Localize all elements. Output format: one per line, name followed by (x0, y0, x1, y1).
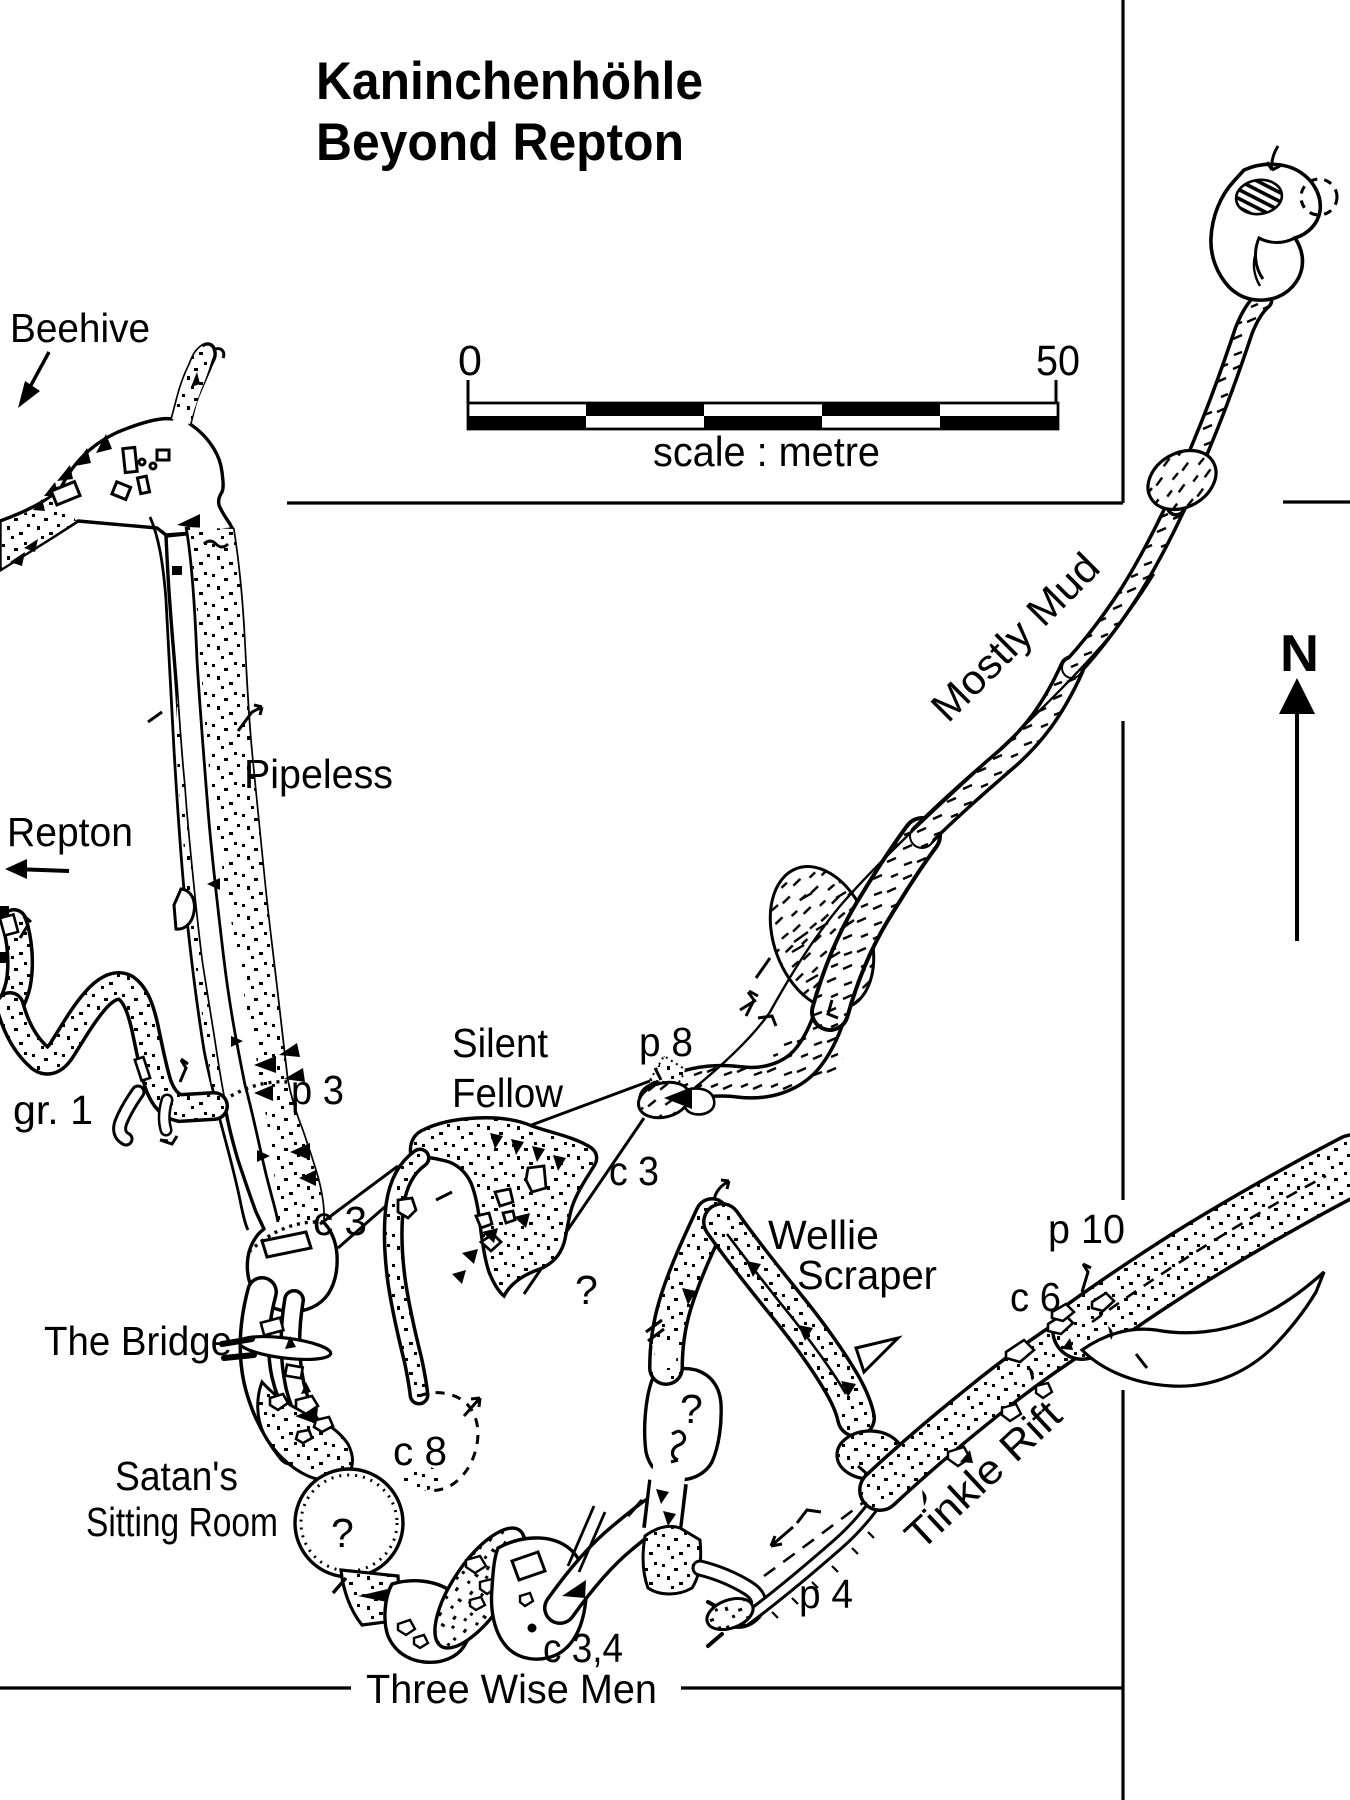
svg-text:c 3: c 3 (609, 1148, 659, 1194)
svg-text:?: ? (680, 1386, 703, 1432)
svg-text:Kaninchenhöhle: Kaninchenhöhle (316, 52, 703, 111)
svg-text:c 3: c 3 (313, 1198, 367, 1244)
svg-text:c 6: c 6 (1010, 1274, 1061, 1320)
svg-text:Beehive: Beehive (10, 305, 150, 351)
svg-text:gr. 1: gr. 1 (13, 1087, 93, 1133)
svg-text:c 8: c 8 (393, 1428, 447, 1474)
svg-text:0: 0 (458, 337, 482, 385)
svg-text:scale : metre: scale : metre (653, 428, 880, 475)
svg-text:Satan's: Satan's (115, 1453, 238, 1499)
svg-text:50: 50 (1036, 337, 1080, 385)
svg-text:The Bridge: The Bridge (44, 1318, 232, 1364)
svg-text:?: ? (331, 1510, 354, 1556)
svg-text:Beyond Repton: Beyond Repton (316, 113, 684, 172)
svg-text:?: ? (575, 1267, 598, 1313)
svg-text:p 4: p 4 (799, 1571, 853, 1617)
svg-text:Silent: Silent (452, 1020, 549, 1066)
svg-text:Scraper: Scraper (797, 1252, 937, 1298)
svg-text:c 3,4: c 3,4 (543, 1625, 623, 1671)
svg-text:p 3: p 3 (291, 1067, 344, 1113)
svg-text:Sitting Room: Sitting Room (86, 1499, 278, 1545)
svg-text:N: N (1280, 625, 1319, 683)
svg-text:Fellow: Fellow (452, 1070, 563, 1116)
svg-text:p 8: p 8 (639, 1019, 693, 1065)
svg-text:Repton: Repton (7, 809, 133, 855)
svg-text:Pipeless: Pipeless (244, 751, 393, 797)
svg-text:Three Wise Men: Three Wise Men (366, 1666, 657, 1712)
svg-text:p 10: p 10 (1048, 1206, 1125, 1252)
